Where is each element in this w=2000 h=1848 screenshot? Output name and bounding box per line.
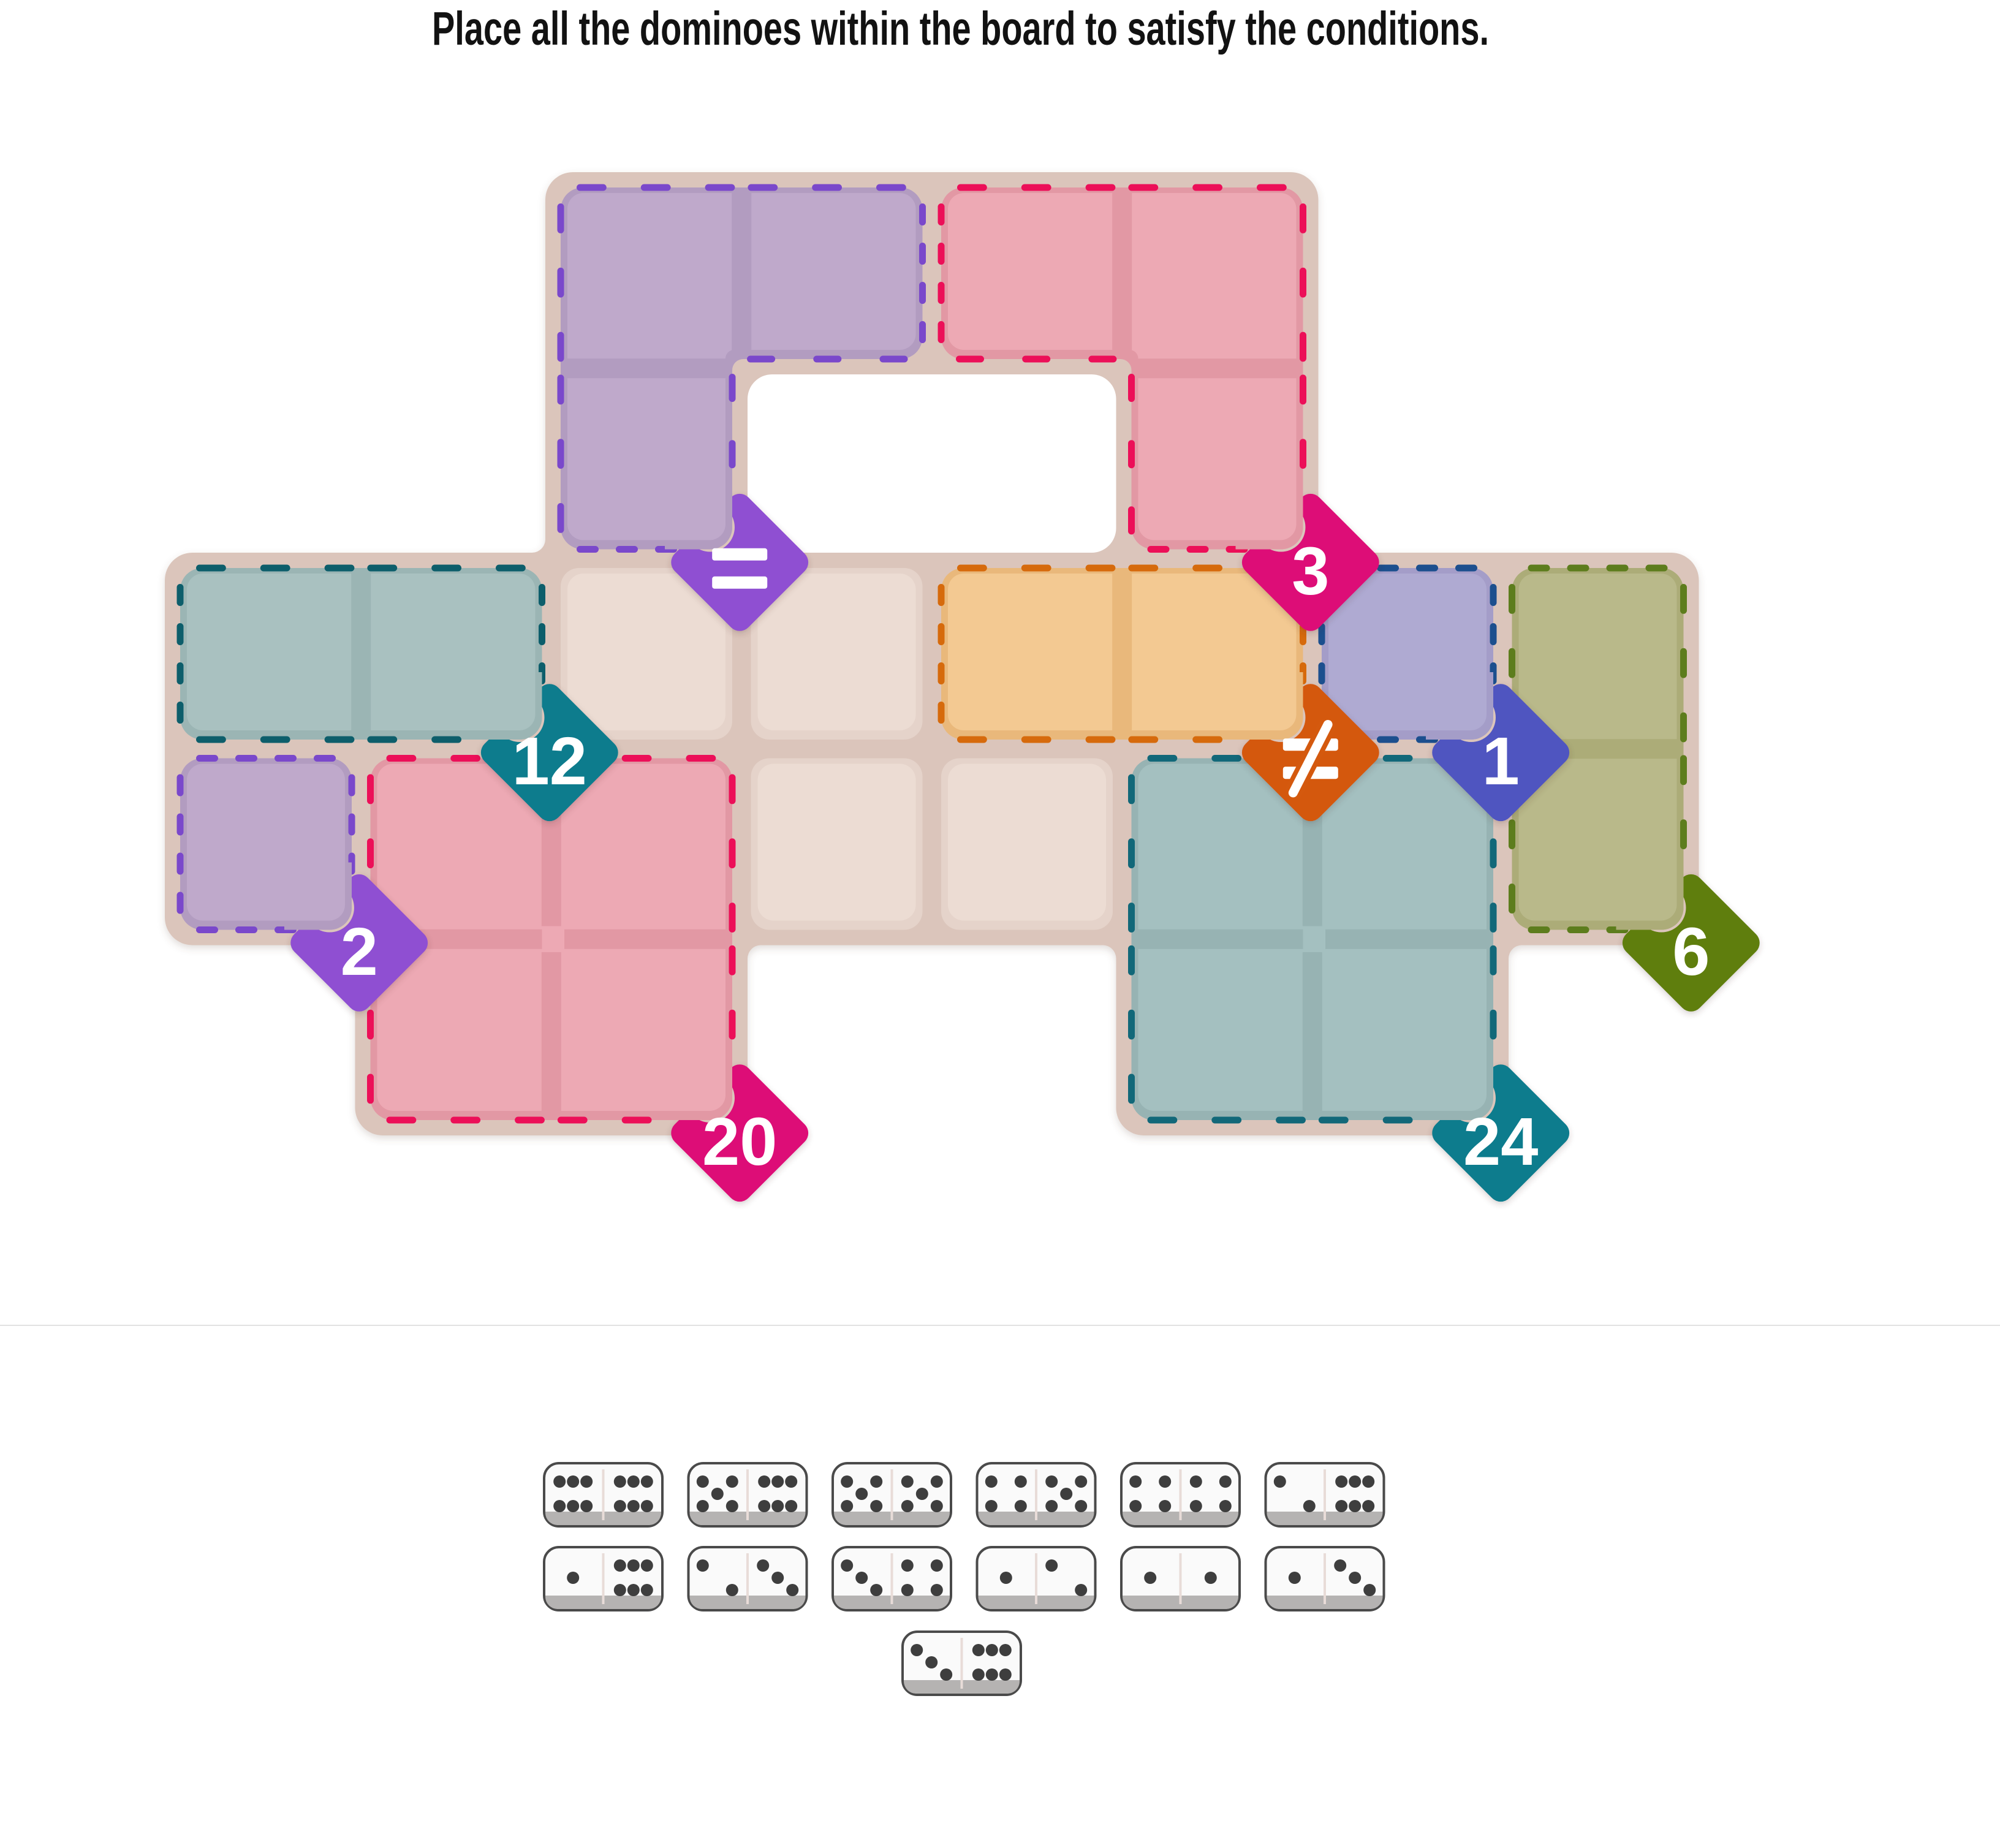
svg-text:3: 3 — [1292, 534, 1329, 609]
svg-text:20: 20 — [702, 1104, 777, 1180]
svg-text:6: 6 — [1672, 914, 1710, 990]
svg-text:24: 24 — [1463, 1104, 1538, 1180]
svg-text:1: 1 — [1482, 724, 1520, 799]
svg-text:Place all the dominoes within: Place all the dominoes within the board … — [432, 2, 1489, 55]
svg-text:2: 2 — [341, 914, 378, 990]
svg-text:12: 12 — [512, 724, 587, 799]
